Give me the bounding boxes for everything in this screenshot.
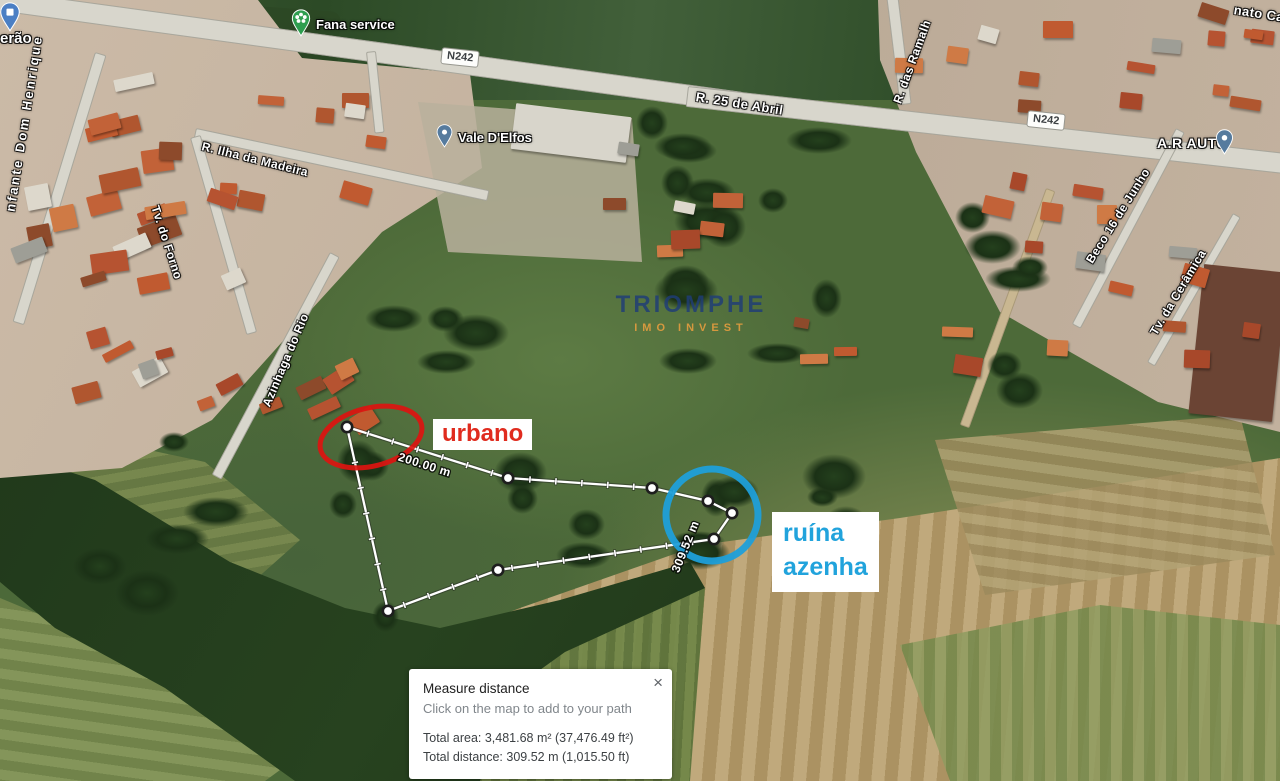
panel-subtitle: Click on the map to add to your path	[423, 701, 656, 716]
place-pin-icon[interactable]	[436, 124, 453, 148]
panel-title: Measure distance	[423, 681, 656, 696]
watermark-line1: TRIOMPHE	[606, 291, 776, 319]
total-distance-text: Total distance: 309.52 m (1,015.50 ft)	[423, 748, 656, 767]
poi-label-vale-delfos[interactable]: Vale D'Elfos	[458, 131, 532, 144]
watermark: TRIOMPHE IMO INVEST	[606, 291, 776, 334]
ruina-label-line2: azenha	[783, 551, 868, 585]
ruina-azenha-annotation: ruína azenha	[772, 512, 879, 592]
satellite-map[interactable]: 200.00 m 309.52 m R. 25 de Abril R. das …	[0, 0, 1280, 781]
lodging-pin-icon[interactable]	[0, 2, 22, 32]
ruina-label-line1: ruína	[783, 517, 868, 551]
florist-pin-icon[interactable]	[291, 9, 311, 37]
watermark-line2: IMO INVEST	[606, 322, 776, 334]
measure-distance-panel: × Measure distance Click on the map to a…	[409, 669, 672, 779]
urbano-label: urbano	[442, 420, 523, 447]
total-area-text: Total area: 3,481.68 m² (37,476.49 ft²)	[423, 729, 656, 748]
measurement-overlay: 200.00 m 309.52 m	[0, 0, 1280, 781]
poi-label-fana-service[interactable]: Fana service	[316, 18, 395, 31]
close-icon[interactable]: ×	[653, 674, 663, 691]
urbano-annotation: urbano	[433, 419, 532, 450]
place-pin-icon[interactable]	[1215, 129, 1234, 155]
poi-label-erao-fragment[interactable]: erão	[0, 31, 32, 46]
